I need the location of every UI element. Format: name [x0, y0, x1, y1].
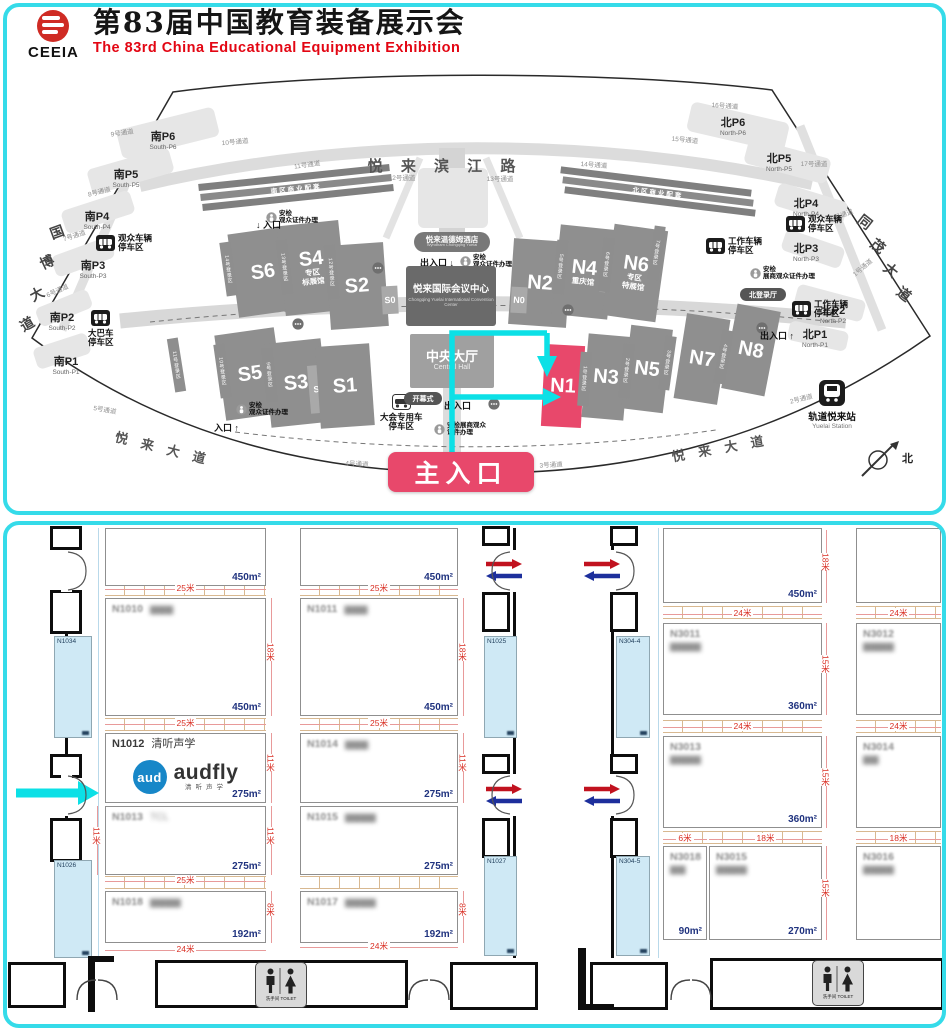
booth-id: N1017 [307, 896, 338, 909]
booth-n1015: N1015▆▆▆▆275m² [300, 806, 458, 875]
door-gap [607, 774, 618, 816]
security-label-line2: 展商观众证件办理 [763, 273, 815, 280]
facility-car: 观众车辆停车区 [96, 234, 152, 253]
booth-partial-10: 450m² [663, 528, 822, 603]
booth-id: N3018 [670, 851, 701, 864]
hall-label: N2 [527, 272, 554, 294]
dimension-label-h: 24米 [856, 608, 941, 618]
facility-label: 大巴车停车区 [88, 329, 114, 348]
registration-strip-label: 3号登录区 [662, 350, 672, 376]
booth-head: N1012清听声学 [112, 738, 195, 751]
booth-name: ▆▆▆ [345, 739, 368, 751]
parking-label-south-p6: 南P6South-P6 [133, 132, 193, 151]
booth-name: ▆▆▆▆ [345, 812, 376, 824]
entrance-label: 入口 ↑ [214, 421, 239, 434]
parking-label-cn: 北P3 [776, 244, 836, 256]
dimension-text: 18米 [755, 833, 777, 843]
dimension-text-v: 11米 [92, 827, 101, 844]
vehicle-icon [706, 238, 725, 254]
parking-label-south-p1: 南P1South-P1 [36, 357, 96, 376]
dimension-text: 25米 [368, 583, 390, 593]
booth-name: ▆▆▆ [344, 604, 367, 616]
page-root: CEEIA 第83届中国教育装备展示会 The 83rd China Educa… [0, 0, 949, 1031]
security-label-line2: 证件办理 [447, 429, 486, 436]
booth-name: ▆▆▆▆ [670, 754, 701, 766]
metro-station: 轨道悦来站Yuelai Station [806, 380, 858, 430]
audfly-wordmark: audfly清听声学 [174, 762, 239, 792]
booth-n1010: N1010▆▆▆450m² [105, 598, 266, 716]
dimension-label-h: 18米 [856, 833, 941, 843]
info-icon [562, 304, 574, 316]
info-icon [372, 262, 384, 274]
facility-label: 大会专用车停车区 [380, 413, 423, 432]
hall-sublabel: 标展馆 [302, 277, 325, 288]
booth-n3013: N3013▆▆▆▆360m² [663, 736, 822, 828]
booth-id: N1010 [112, 603, 143, 616]
facility-label-line2: 停车区 [118, 243, 152, 252]
booth-id: N1018 [112, 896, 143, 909]
vehicle-icon [786, 216, 805, 232]
toilet-label: 洗手间 TOILET [266, 996, 296, 1002]
security-label-line2: 观众证件办理 [279, 217, 318, 224]
hall-label: S5 [236, 362, 263, 385]
ceeia-logo: CEEIA [28, 8, 79, 61]
dimension-text: 25米 [368, 718, 390, 728]
facility-label: 观众车辆停车区 [808, 215, 842, 234]
door-gap [61, 550, 72, 592]
wall-box [610, 754, 638, 774]
booth-id: N3012 [863, 628, 894, 641]
booth-partial-0: 450m² [105, 528, 266, 586]
booth-id: N3015 [716, 851, 747, 864]
security-check-note: 安检观众证件办理 [236, 402, 288, 417]
convention-center-block: 悦来国际会议中心Chongqing Yuelai International C… [406, 266, 496, 326]
booth-area: 360m² [788, 814, 817, 825]
booth-id: N1015 [307, 811, 338, 824]
dimension-label-h: 24米 [856, 721, 941, 731]
bottom-room [450, 962, 538, 1010]
ceeia-logo-text: CEEIA [28, 44, 79, 61]
hall-s0: S0 [381, 286, 398, 315]
booth-partial-15 [856, 528, 941, 603]
parking-label-en: South-P2 [32, 325, 92, 332]
security-check-note: 安检展商观众证件办理 [434, 422, 486, 437]
dimension-label-h: 24米 [300, 941, 458, 951]
hall-sublabel: 特展馆 [621, 281, 644, 293]
dimension-text: 24米 [732, 608, 754, 618]
central-hall-block: 中央大厅Central Hall [410, 334, 494, 388]
registration-strip-label: 6号登录区 [602, 252, 612, 278]
dimension-text: 25米 [175, 583, 197, 593]
registration-strip-label: 2号登录区 [622, 358, 632, 384]
pillar-label: N1034 [55, 637, 91, 646]
pillar-n304-4: N304-4▆▆ [616, 636, 650, 738]
wall-corner [578, 1004, 614, 1010]
booth-id: N3013 [670, 741, 701, 754]
hall-label: S2 [344, 275, 370, 297]
dimension-text: 24米 [368, 941, 390, 951]
dimension-line-v [271, 891, 272, 943]
metro-station-name-en: Yuelai Station [812, 423, 852, 430]
north-compass-label: 北 [902, 450, 913, 466]
security-label: 安检观众证件办理 [279, 210, 318, 225]
pillar-sub: ▆▆ [82, 730, 89, 736]
booth-area: 450m² [232, 572, 261, 583]
booth-id: N1011 [307, 603, 337, 616]
security-label: 安检展商观众证件办理 [763, 266, 815, 281]
wall-box [50, 590, 82, 634]
entrance-label: ↓ 入口 [256, 218, 281, 231]
dimension-ruler [300, 876, 458, 889]
audfly-logo: audaudfly清听声学 [120, 756, 251, 798]
pillar-sub: ▆▆ [507, 948, 514, 954]
booth-head: N3013▆▆▆▆ [670, 741, 701, 766]
booth-head: N3011▆▆▆▆ [670, 628, 701, 653]
pillar-n1025: N1025▆▆ [484, 636, 517, 738]
wall-box [610, 592, 638, 632]
pillar-n1026: N1026▆▆ [54, 860, 92, 958]
door-gap [61, 774, 72, 816]
toilet-sign: 洗手间 TOILET [812, 960, 864, 1006]
hall-label: N3 [592, 366, 619, 388]
hall-guide-line [658, 528, 659, 958]
vehicle-icon [792, 301, 811, 317]
booth-area: 275m² [424, 861, 453, 872]
facility-label-line2: 停车区 [808, 224, 842, 233]
dimension-text: 24米 [888, 721, 910, 731]
convention-center-name: 悦来国际会议中心 [413, 285, 489, 295]
bottom-room [8, 962, 66, 1008]
registration-strip-label: 9号登录区 [265, 362, 275, 388]
facility-label-line2: 停车区 [728, 246, 762, 255]
wall-box [482, 592, 510, 632]
booth-n3016: N3016▆▆▆▆ [856, 846, 941, 940]
parking-label-north-p3: 北P3North-P3 [776, 244, 836, 263]
channel-label: 17号通道 [792, 158, 836, 168]
vehicle-icon [91, 310, 110, 326]
pillar-n304-5: N304-5▆▆ [616, 856, 650, 956]
booth-name: ▆▆▆▆ [150, 897, 181, 909]
booth-id: N1012 [112, 738, 144, 751]
hall-label: S6 [249, 260, 276, 283]
audfly-brand: audfly [174, 762, 239, 783]
booth-head: N3015▆▆▆▆ [716, 851, 747, 876]
dimension-text-v: 11米 [266, 754, 275, 771]
wall-box [482, 754, 510, 774]
parking-label-south-p2: 南P2South-P2 [32, 313, 92, 332]
dimension-text-v: 18米 [458, 643, 467, 661]
female-icon [284, 968, 297, 994]
metro-station-name: 轨道悦来站 [808, 409, 856, 423]
parking-label-en: North-P3 [776, 256, 836, 263]
security-icon [434, 424, 445, 435]
booth-area: 450m² [232, 702, 261, 713]
booth-name: ▆▆▆▆ [345, 897, 376, 909]
facility-label: 观众车辆停车区 [118, 234, 152, 253]
facility-work: 工作车辆停车区 [792, 300, 848, 319]
wall-box [610, 818, 638, 858]
booth-n1012: N1012清听声学275m²audaudfly清听声学 [105, 733, 266, 803]
booth-area: 90m² [679, 926, 702, 937]
booth-n1011: N1011▆▆▆450m² [300, 598, 458, 716]
hall-label: N1 [550, 375, 577, 396]
booth-area: 192m² [424, 929, 453, 940]
dimension-text: 25米 [175, 875, 197, 885]
hall-label: S1 [332, 375, 358, 397]
booth-n1017: N1017▆▆▆▆192m² [300, 891, 458, 943]
booth-name: ▆▆▆▆ [863, 864, 894, 876]
wall-box [50, 818, 82, 862]
booth-head: N1010▆▆▆ [112, 603, 173, 616]
female-icon [841, 966, 854, 992]
booth-id: N3016 [863, 851, 894, 864]
security-icon [236, 404, 247, 415]
booth-area: 450m² [788, 589, 817, 600]
booth-area: 270m² [788, 926, 817, 937]
dimension-text-v: 8米 [458, 903, 467, 916]
booth-name: ▆▆ [670, 864, 701, 876]
wall-corner [88, 956, 95, 1012]
wall-box [482, 818, 510, 858]
title-block: 第83届中国教育装备展示会 The 83rd China Educational… [93, 8, 466, 56]
booth-head: N3016▆▆▆▆ [863, 851, 894, 876]
dimension-label-h: 6米 [663, 833, 707, 843]
dimension-text-v: 15米 [821, 768, 830, 786]
pillar-sub: ▆▆ [640, 730, 647, 736]
info-icon [488, 398, 500, 410]
parking-label-cn: 南P1 [36, 357, 96, 369]
exhibition-title-en: The 83rd China Educational Equipment Exh… [93, 40, 466, 56]
train-icon [819, 380, 845, 406]
booth-partial-5: 450m² [300, 528, 458, 586]
parking-label-en: North-P6 [703, 130, 763, 137]
parking-label-cn: 南P4 [67, 212, 127, 224]
booth-n3011: N3011▆▆▆▆360m² [663, 623, 822, 715]
dimension-label-h: 25米 [300, 583, 458, 593]
hall-n0: N0 [510, 287, 527, 314]
security-label: 安检展商观众证件办理 [447, 422, 486, 437]
audfly-brand-sub: 清听声学 [185, 785, 227, 792]
facility-work: 工作车辆停车区 [706, 237, 762, 256]
booth-area: 450m² [424, 572, 453, 583]
dimension-text-v: 11米 [266, 827, 275, 844]
facility-label-line2: 停车区 [380, 422, 423, 431]
security-check-note: 安检展商观众证件办理 [750, 266, 815, 281]
booth-id: N3011 [670, 628, 701, 641]
main-entrance-badge: 主入口 [388, 452, 534, 492]
map-pill: 开幕式 [404, 392, 442, 405]
wall-box [610, 526, 638, 546]
dimension-text: 25米 [175, 718, 197, 728]
registration-strip-label: 7号登录区 [651, 240, 661, 266]
facility-label-line2: 停车区 [88, 338, 114, 347]
wall-box [482, 526, 510, 546]
dimension-label-h: 25米 [105, 583, 266, 593]
registration-strip-label: 4号登录区 [718, 344, 729, 370]
security-label-line2: 观众证件办理 [249, 409, 288, 416]
map-pill: 北登录厅 [740, 288, 786, 301]
booth-head: N1011▆▆▆ [307, 603, 367, 616]
booth-head: N1014▆▆▆ [307, 738, 368, 751]
male-icon [822, 966, 833, 992]
dimension-text: 6米 [676, 833, 693, 843]
parking-label-cn: 南P5 [96, 170, 156, 182]
booth-name: ▆▆▆ [150, 604, 173, 616]
dimension-text: 24米 [175, 944, 197, 954]
hall-sublabel: 重庆馆 [571, 276, 594, 287]
dimension-label-h: 24米 [663, 608, 822, 618]
facility-car: 观众车辆停车区 [786, 215, 842, 234]
dimension-text: 24米 [732, 721, 754, 731]
wall-corner [578, 948, 586, 1010]
pillar-label: N1027 [485, 857, 516, 866]
bottom-room [590, 962, 668, 1010]
road-label: 悦 来 滨 江 路 [355, 155, 535, 176]
hall-label: N5 [633, 358, 661, 381]
dimension-label-h: 24米 [105, 944, 266, 954]
booth-head: N3018▆▆ [670, 851, 701, 876]
dimension-label-h: 25米 [300, 718, 458, 728]
parking-label-cn: 南P2 [32, 313, 92, 325]
hall-label: S3 [283, 372, 309, 394]
pillar-n1027: N1027▆▆ [484, 856, 517, 956]
door-gap [607, 550, 618, 592]
door-gap [509, 550, 520, 592]
dimension-text-v: 18米 [266, 643, 275, 661]
parking-label-cn: 北P4 [776, 199, 836, 211]
booth-n1013: N1013TCL275m² [105, 806, 266, 875]
hotel-block: 悦来温德姆酒店Wyndham Chongqing Yuelai [414, 232, 490, 252]
hall-label: N7 [688, 347, 716, 371]
dimension-text-v: 15米 [821, 655, 830, 673]
dimension-text: 18米 [888, 833, 910, 843]
dimension-label-h: 25米 [105, 875, 266, 885]
male-icon [265, 968, 276, 994]
parking-label-cn: 南P3 [63, 261, 123, 273]
facility-label: 工作车辆停车区 [728, 237, 762, 256]
booth-id: N3014 [863, 741, 894, 754]
dimension-line-v [463, 891, 464, 943]
booth-name: ▆▆▆▆ [670, 641, 701, 653]
booth-n1018: N1018▆▆▆▆192m² [105, 891, 266, 943]
booth-area: 192m² [232, 929, 261, 940]
toilet-icons [265, 968, 297, 994]
booth-area: 275m² [424, 789, 453, 800]
registration-strip-label: 5号登录区 [556, 254, 565, 280]
booth-area: 275m² [232, 861, 261, 872]
ceeia-logo-icon [37, 10, 69, 42]
pillar-n1034: N1034▆▆ [54, 636, 92, 738]
booth-n3015: N3015▆▆▆▆270m² [709, 846, 822, 940]
registration-strip-label: 13号登录区 [279, 252, 289, 281]
hall-guide-line [98, 528, 99, 958]
booth-head: N3012▆▆▆▆ [863, 628, 894, 653]
exhibition-title-cn: 第83届中国教育装备展示会 [93, 8, 466, 37]
booth-name: TCL [150, 812, 169, 824]
booth-name: ▆▆▆▆ [716, 864, 747, 876]
parking-label-north-p6: 北P6North-P6 [703, 118, 763, 137]
dimension-text-v: 15米 [821, 879, 830, 897]
dimension-label-h: 24米 [663, 721, 822, 731]
booth-name: ▆▆▆▆ [863, 641, 894, 653]
dimension-text-v: 18米 [821, 553, 830, 571]
booth-area: 360m² [788, 701, 817, 712]
booth-head: N1018▆▆▆▆ [112, 896, 181, 909]
dimension-label-h: 25米 [105, 718, 266, 728]
booth-n3018: N3018▆▆90m² [663, 846, 707, 940]
audfly-circle-icon: aud [133, 760, 167, 794]
toilet-icons [822, 966, 854, 992]
entrance-label: 出入口 ↑ [760, 329, 794, 342]
door-gap [509, 774, 520, 816]
info-icon [292, 318, 304, 330]
pillar-sub: ▆▆ [507, 730, 514, 736]
toilet-label: 洗手间 TOILET [823, 994, 853, 1000]
pillar-label: N1025 [485, 637, 516, 646]
booth-head: N1013TCL [112, 811, 169, 824]
security-label: 安检观众证件办理 [249, 402, 288, 417]
convention-center-name-en: Chongqing Yuelai International Conventio… [408, 297, 494, 307]
booth-head: N1017▆▆▆▆ [307, 896, 376, 909]
hotel-name-en: Wyndham Chongqing Yuelai [427, 243, 477, 248]
parking-label-en: South-P1 [36, 369, 96, 376]
booth-id: N1013 [112, 811, 143, 824]
dimension-text-v: 8米 [266, 903, 275, 916]
dimension-label-h: 18米 [709, 833, 822, 843]
parking-label-en: South-P6 [133, 144, 193, 151]
parking-label-en: North-P1 [785, 342, 845, 349]
facility-bus: 大巴车停车区 [88, 310, 114, 348]
dimension-text-v: 11米 [458, 754, 467, 771]
booth-name: ▆▆ [863, 754, 894, 766]
wall-box [50, 526, 82, 550]
central-hall-name-en: Central Hall [434, 364, 471, 372]
facility-label-line2: 停车区 [814, 309, 848, 318]
hall-label: N0 [513, 295, 525, 305]
registration-strip-label: 1号登录区 [580, 366, 589, 392]
hall-s1: S1 [315, 343, 375, 429]
booth-head: N3014▆▆ [863, 741, 894, 766]
entrance-label: 出入口 [444, 399, 471, 412]
facility-label: 工作车辆停车区 [814, 300, 848, 319]
booth-head: N1015▆▆▆▆ [307, 811, 376, 824]
booth-n3012: N3012▆▆▆▆ [856, 623, 941, 715]
pillar-label: N304-5 [617, 857, 649, 866]
toilet-sign: 洗手间 TOILET [255, 962, 307, 1008]
registration-strip-label: 12号登录区 [327, 257, 336, 286]
pillar-sub: ▆▆ [640, 948, 647, 954]
booth-n3014: N3014▆▆ [856, 736, 941, 828]
booth-name: 清听声学 [151, 738, 195, 751]
hall-label: S0 [384, 295, 395, 305]
pillar-label: N304-4 [617, 637, 649, 646]
registration-strip-label: 10号登录区 [217, 356, 228, 385]
registration-strip-label: 11号登录区 [171, 351, 182, 380]
booth-area: 450m² [424, 702, 453, 713]
exhibition-header: CEEIA 第83届中国教育装备展示会 The 83rd China Educa… [28, 8, 466, 61]
parking-label-cn: 北P6 [703, 118, 763, 130]
booth-n1014: N1014▆▆▆275m² [300, 733, 458, 803]
pillar-label: N1026 [55, 861, 91, 870]
central-hall-name: 中央大厅 [426, 350, 478, 364]
security-icon [750, 268, 761, 279]
vehicle-icon [96, 235, 115, 251]
dimension-text: 24米 [888, 608, 910, 618]
booth-id: N1014 [307, 738, 338, 751]
registration-strip-label: 14号登录区 [223, 254, 234, 283]
